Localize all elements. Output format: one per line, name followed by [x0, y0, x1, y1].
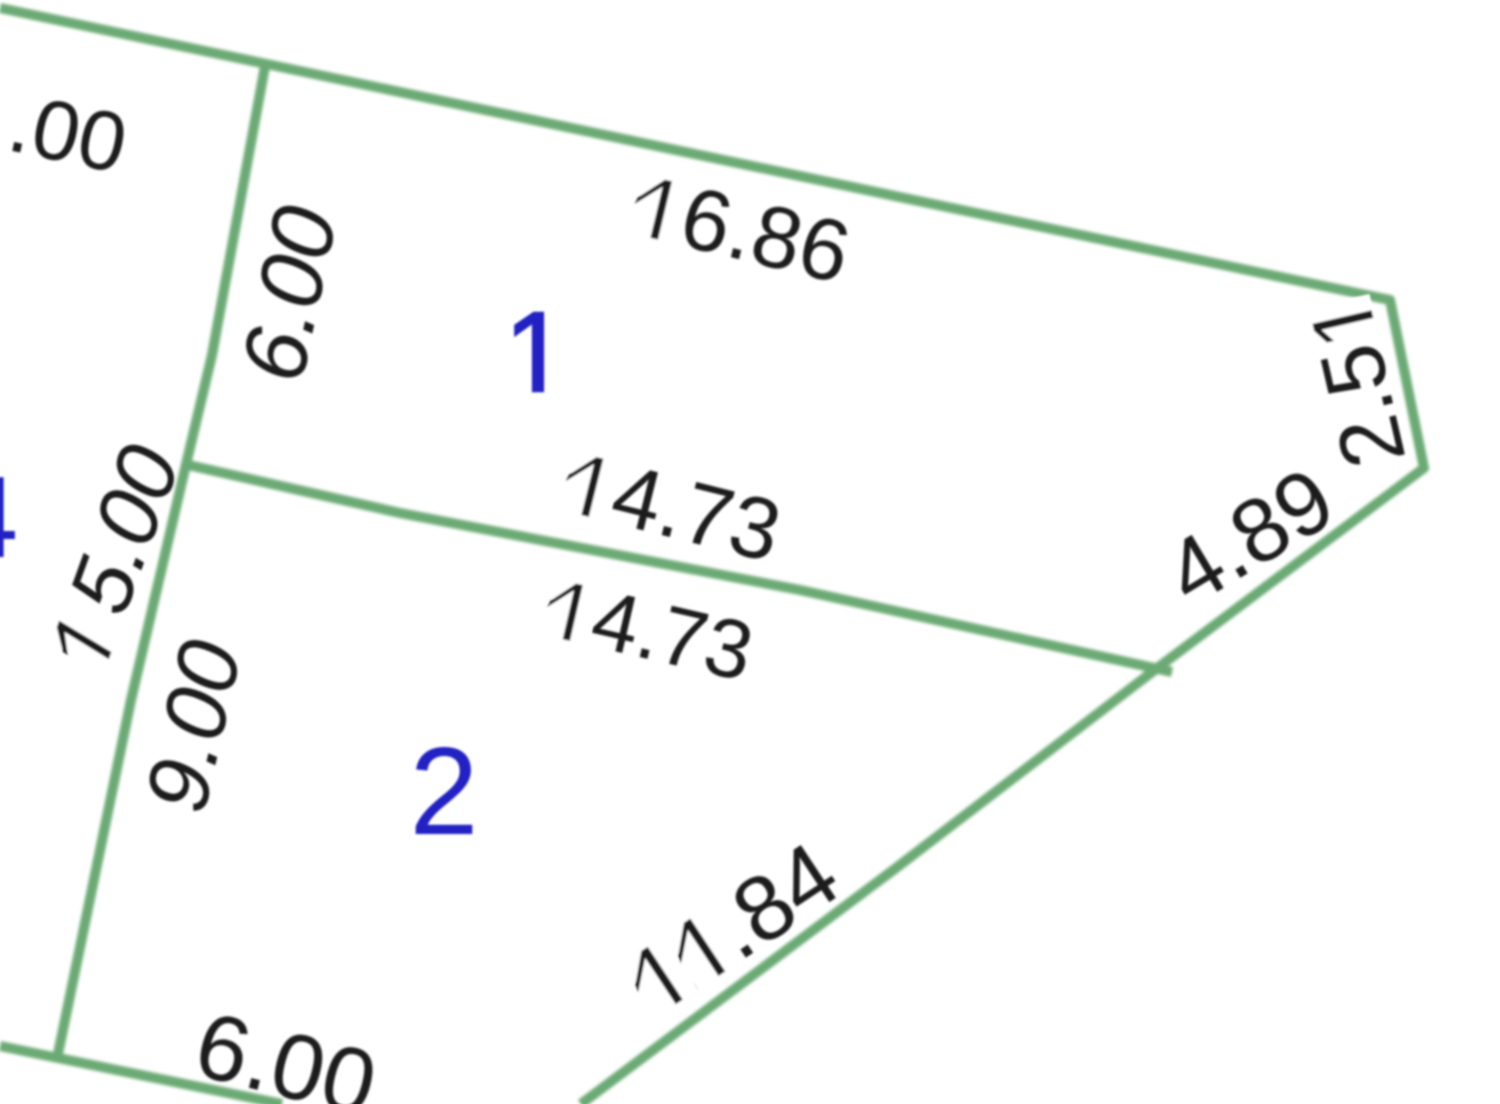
- svg-text:4: 4: [0, 452, 18, 582]
- svg-text:2: 2: [410, 723, 479, 861]
